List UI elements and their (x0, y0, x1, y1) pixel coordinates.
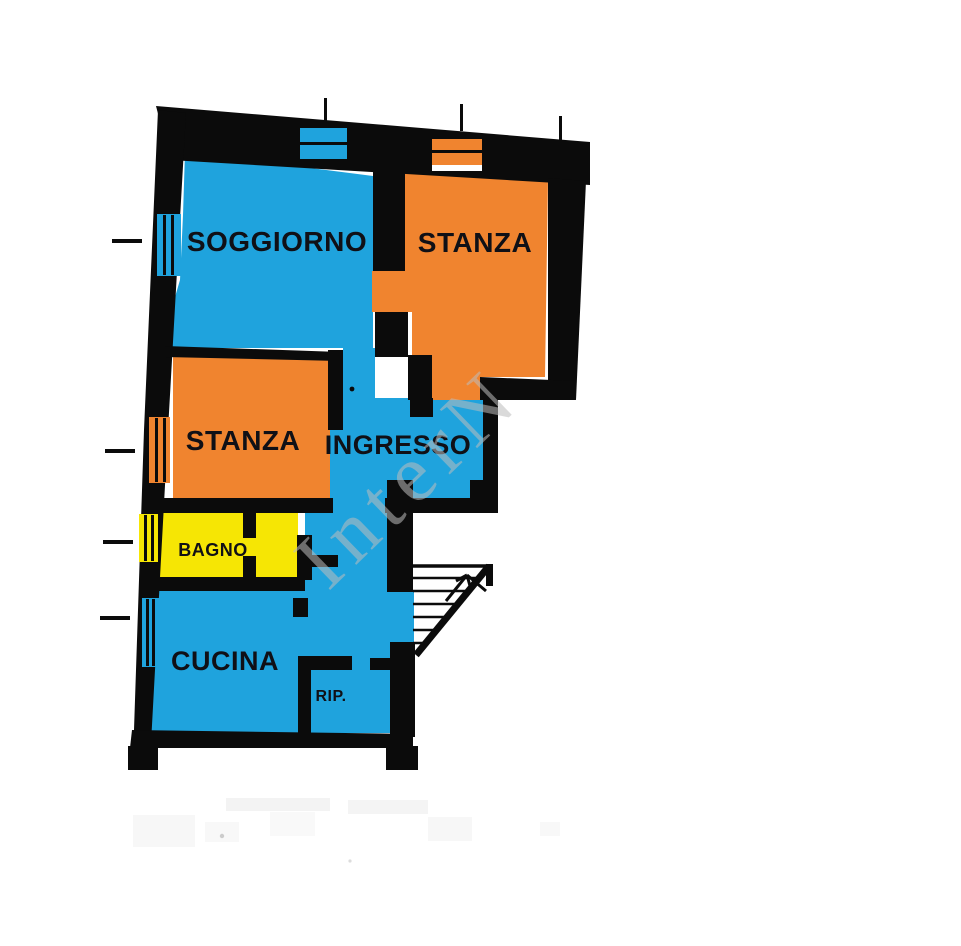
artifact-dot (348, 859, 351, 862)
wall-rip-top (305, 656, 352, 670)
window-left-cucina-bar (152, 599, 155, 666)
wall-soggiorno-stanza-lower (375, 312, 408, 357)
window-left-bagno-bar (151, 515, 154, 561)
window-left-soggiorno-bar (171, 215, 174, 275)
door-hinge-dot (350, 387, 355, 392)
wall-foot-left (128, 746, 158, 770)
window-left-stanza (149, 417, 170, 483)
tick-top-3 (559, 116, 562, 141)
artifact-smudge (205, 822, 239, 842)
window-left-cucina (142, 598, 159, 667)
room-label-stanza-top: STANZA (418, 227, 532, 258)
window-left-stanza-bar (155, 418, 158, 482)
wall-foot-right (386, 746, 418, 770)
tick-top-2 (460, 104, 463, 131)
window-left-stanza-bar (163, 418, 166, 482)
window-left-soggiorno (157, 214, 181, 276)
room-label-cucina: CUCINA (171, 646, 279, 676)
wall-bagno-partition-upper (243, 512, 256, 538)
floor-plan-drawing: SOGGIORNO STANZA STANZA INGRESSO BAGNO C… (0, 0, 961, 946)
room-label-bagno: BAGNO (178, 540, 248, 560)
room-label-stanza-mid: STANZA (186, 425, 300, 456)
tick-left-1 (112, 239, 142, 243)
stairs-hypotenuse (416, 566, 489, 655)
floor-plan-page: SOGGIORNO STANZA STANZA INGRESSO BAGNO C… (0, 0, 961, 946)
door-stairwell (391, 592, 414, 642)
scan-artifacts (133, 798, 560, 863)
wall-bagno-bottom (158, 577, 305, 591)
wall-stairwell-lower (390, 642, 415, 737)
artifact-smudge (348, 800, 428, 814)
wall-stanza-top-right (548, 178, 586, 400)
stairs-right-bar (486, 564, 493, 586)
artifact-smudge (270, 812, 315, 836)
window-left-bagno (139, 514, 158, 562)
tick-top-1 (324, 98, 327, 122)
artifact-dot (220, 834, 224, 838)
wall-soggiorno-stanza-upper (373, 157, 405, 271)
tick-left-2 (105, 449, 135, 453)
window-top-soggiorno-bar (300, 142, 347, 145)
window-left-soggiorno-bar (163, 215, 166, 275)
room-label-rip: RIP. (315, 688, 346, 705)
window-left-cucina-bar (146, 599, 149, 666)
artifact-smudge (226, 798, 330, 811)
staircase (411, 564, 493, 655)
wall-rip-jamb (370, 658, 392, 670)
artifact-smudge (428, 817, 472, 841)
room-label-soggiorno: SOGGIORNO (187, 226, 367, 257)
wall-stanza-mid-right (328, 350, 343, 430)
tick-left-4 (100, 616, 130, 620)
artifact-smudge (133, 815, 195, 847)
window-top-stanza-bar (432, 150, 482, 153)
wall-cucina-stub (293, 598, 308, 617)
window-top-stanza-gap (432, 165, 482, 171)
window-left-bagno-bar (144, 515, 147, 561)
tick-left-3 (103, 540, 133, 544)
artifact-smudge (540, 822, 560, 836)
